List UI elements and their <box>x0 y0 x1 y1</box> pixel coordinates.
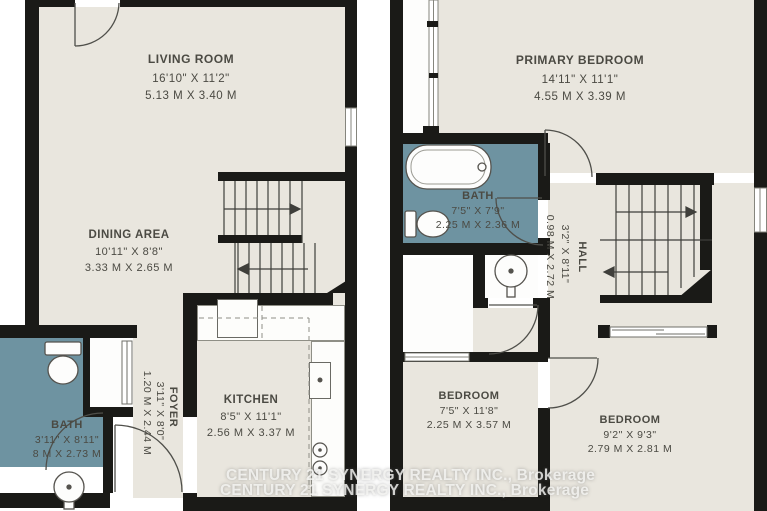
room-dim-metric: 5.13 M X 3.40 M <box>91 90 291 102</box>
room-name: BEDROOM <box>530 414 730 426</box>
wall <box>345 146 357 511</box>
room-label-foyer-name: FOYER <box>165 332 179 482</box>
room-dim-imperial: 16'10" X 11'2" <box>91 73 291 85</box>
wall <box>120 0 357 7</box>
stairs-bottom-wall <box>600 295 712 303</box>
room-label-bedroom-right: BEDROOM 9'2" X 9'3" 2.79 M X 2.81 M <box>530 414 730 457</box>
watermark-line: CENTURY 21 SYNERGY REALTY INC., Brokerag… <box>220 483 595 498</box>
room-dim-metric: 4.55 M X 3.39 M <box>480 91 680 103</box>
room-dim-metric: 3.33 M X 2.65 M <box>29 262 229 274</box>
room-label-living-room: LIVING ROOM 16'10" X 11'2" 5.13 M X 3.40… <box>91 52 291 107</box>
closet-left-wall <box>83 338 90 417</box>
room-label-dining-area: DINING AREA 10'11" X 8'8" 3.33 M X 2.65 … <box>29 229 229 278</box>
room-dim-imperial: 10'11" X 8'8" <box>29 246 229 258</box>
window-living-room <box>346 108 357 146</box>
hall-top-wall <box>596 173 714 185</box>
hallway-floor <box>39 305 133 325</box>
room-label-foyer-metric: 1.20 M X 2.44 M <box>139 338 153 488</box>
room-label-hall-name: HALL <box>574 182 588 332</box>
bottom-wall-bedroom <box>390 497 550 511</box>
upper-bath-top-wall <box>390 133 548 144</box>
exterior-notch-mid <box>403 258 473 352</box>
room-name: KITCHEN <box>151 394 351 406</box>
closet-stub-right <box>707 325 717 338</box>
room-name: BEDROOM <box>369 390 569 402</box>
bottom-wall-bath <box>0 493 110 508</box>
stairs-right-wall <box>700 183 712 270</box>
stairs-top-wall <box>218 172 347 181</box>
bedroom-middle-top-wall <box>403 352 548 362</box>
room-name: PRIMARY BEDROOM <box>480 53 680 67</box>
closet-slider-door-main <box>122 341 132 404</box>
room-label-hall-metric: 0.98 M X 2.72 M <box>542 182 556 332</box>
room-label-kitchen: KITCHEN 8'5" X 11'1" 2.56 M X 3.37 M <box>151 394 351 443</box>
left-outer-wall <box>390 0 403 511</box>
room-label-primary-bedroom: PRIMARY BEDROOM 14'11" X 11'1" 4.55 M X … <box>480 53 680 108</box>
room-label-hall-imperial: 3'2" X 8'11" <box>557 179 571 329</box>
bottom-wall-kitchen <box>183 497 357 511</box>
vestibule-floor <box>473 308 548 352</box>
sink-alcove-floor <box>485 255 538 298</box>
fridge <box>217 299 258 338</box>
watermark-line: CENTURY 21 SYNERGY REALTY INC., Brokerag… <box>226 468 595 483</box>
wall <box>25 0 39 332</box>
stairs-landing-wall <box>218 235 302 243</box>
closet-floor <box>90 338 123 407</box>
alcove-bottom-wall-a <box>473 298 488 308</box>
wall <box>345 0 357 108</box>
right-outer-wall <box>754 0 767 511</box>
room-dim-metric: 2.56 M X 3.37 M <box>151 427 351 439</box>
room-dim-imperial: 9'2" X 9'3" <box>530 429 730 441</box>
room-name: DINING AREA <box>29 229 229 241</box>
kitchen-top-wall <box>183 293 333 305</box>
exterior-notch-top <box>403 0 429 133</box>
brokerage-watermark: CENTURY 21 SYNERGY REALTY INC., Brokerag… <box>226 468 595 498</box>
floor-plan: LIVING ROOM 16'10" X 11'2" 5.13 M X 3.40… <box>0 0 767 511</box>
main-bath-floor <box>0 338 84 413</box>
room-name: LIVING ROOM <box>91 52 291 66</box>
closet-stub-left <box>598 325 610 338</box>
room-dim-imperial: 14'11" X 11'1" <box>480 74 680 86</box>
room-label-foyer-imperial: 3'11" X 8'0" <box>152 336 166 486</box>
wall <box>25 0 75 7</box>
room-dim-metric: 2.79 M X 2.81 M <box>530 443 730 455</box>
upper-bath-bottom-wall <box>403 243 550 255</box>
room-dim-imperial: 8'5" X 11'1" <box>151 411 351 423</box>
bath-top-wall <box>0 325 137 338</box>
